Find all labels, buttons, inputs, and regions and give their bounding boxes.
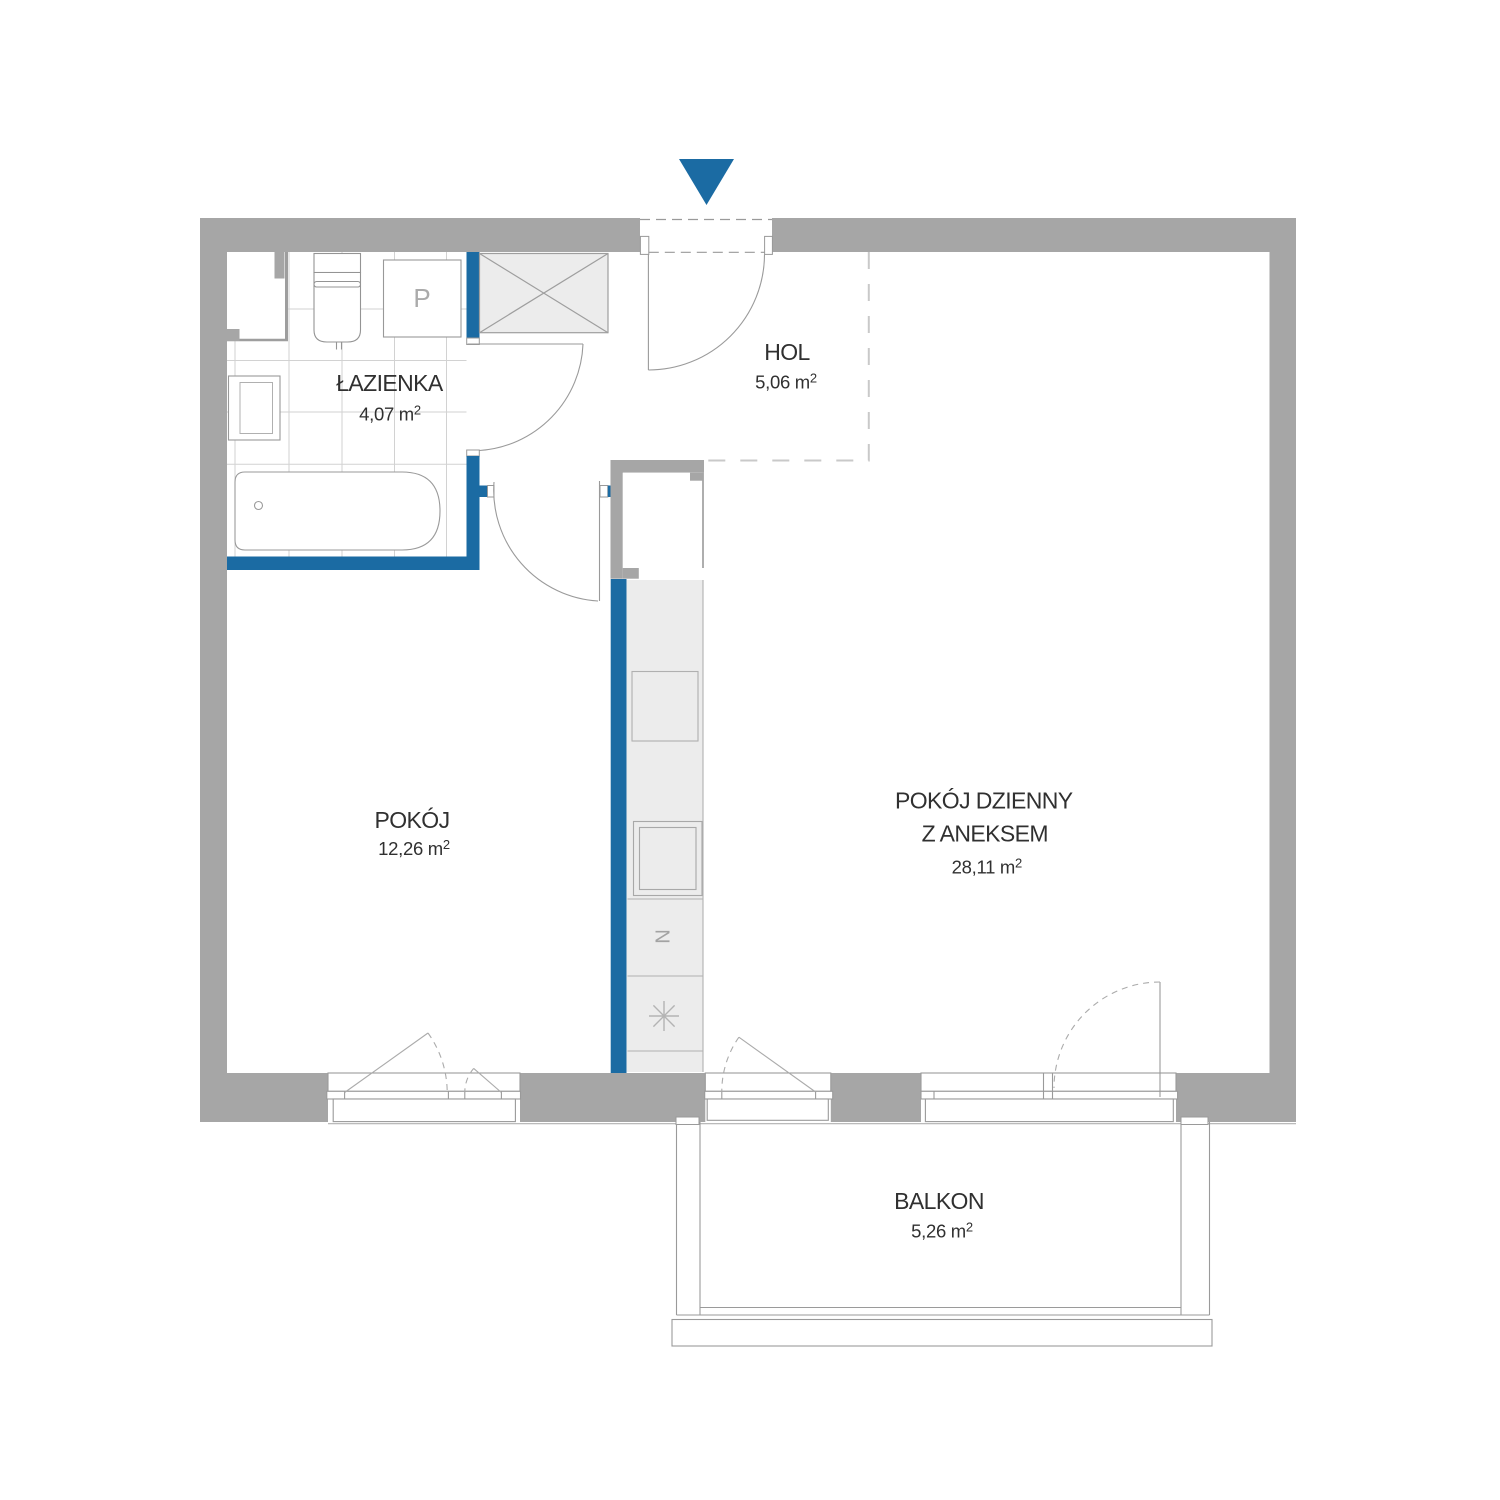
svg-text:5,06 m2: 5,06 m2 xyxy=(755,371,817,393)
svg-text:4,07 m2: 4,07 m2 xyxy=(359,403,421,425)
svg-text:HOL: HOL xyxy=(764,339,810,365)
svg-text:POKÓJ: POKÓJ xyxy=(375,807,450,833)
svg-text:BALKON: BALKON xyxy=(894,1188,984,1214)
svg-text:POKÓJ DZIENNY: POKÓJ DZIENNY xyxy=(895,788,1073,814)
svg-text:5,26 m2: 5,26 m2 xyxy=(911,1220,973,1242)
svg-text:Z ANEKSEM: Z ANEKSEM xyxy=(922,821,1048,847)
svg-text:ŁAZIENKA: ŁAZIENKA xyxy=(336,370,444,396)
svg-text:12,26 m2: 12,26 m2 xyxy=(378,837,450,859)
svg-text:28,11 m2: 28,11 m2 xyxy=(952,856,1022,878)
svg-text:N: N xyxy=(651,929,673,943)
svg-text:P: P xyxy=(413,283,430,313)
